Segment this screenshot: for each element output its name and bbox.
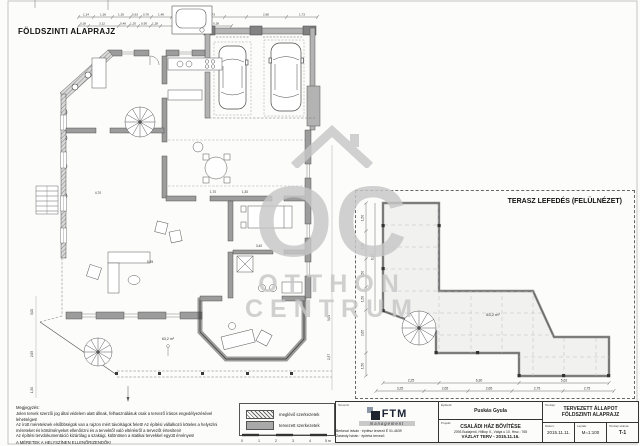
project-label: Projekt: xyxy=(441,421,451,425)
svg-text:0,48: 0,48 xyxy=(120,22,126,26)
living-room-furniture xyxy=(86,221,182,293)
svg-text:5 m: 5 m xyxy=(325,439,331,443)
corridor-lines xyxy=(168,140,305,186)
svg-text:2,65: 2,65 xyxy=(30,351,34,357)
planned-structure-swatch xyxy=(246,421,274,430)
ftm-logo-text: FTM xyxy=(382,409,408,420)
svg-text:1,50: 1,50 xyxy=(361,363,365,369)
sheet-name: FÖLDSZINTI ALAPRAJZ xyxy=(562,412,619,418)
terrace-plan-title: TERASZ LEFEDÉS (FELÜLNÉZET) xyxy=(508,198,622,205)
bedroom-furniture xyxy=(237,206,302,293)
spiral-staircase-icon xyxy=(125,107,155,137)
svg-text:3,40: 3,40 xyxy=(256,244,262,248)
client-label: Építtető: xyxy=(441,403,452,407)
title-block-project: Építtető: Puskás Gyula Projekt: CSALÁDI … xyxy=(439,402,543,442)
svg-text:2,37: 2,37 xyxy=(327,354,331,360)
svg-text:1,48: 1,48 xyxy=(158,13,164,17)
svg-text:1,36: 1,36 xyxy=(100,13,106,17)
svg-text:2,65: 2,65 xyxy=(442,387,449,391)
svg-text:1,20: 1,20 xyxy=(130,22,136,26)
legend-existing-label: meglévő szerkezetek xyxy=(279,412,319,417)
drawing-sheet: FÖLDSZINTI ALAPRAJZ xyxy=(0,0,640,446)
svg-text:0: 0 xyxy=(241,439,243,443)
svg-text:1,30: 1,30 xyxy=(242,190,248,194)
terrace-area-label: 63,2 m² xyxy=(162,337,175,341)
svg-text:1,73: 1,73 xyxy=(299,13,305,17)
ftm-logo-icon xyxy=(367,407,380,420)
title-block-sheet: Tervlap: TERVEZETT ÁLLAPOT FÖLDSZINTI AL… xyxy=(543,402,638,442)
exterior-stairs xyxy=(36,186,58,214)
spiral-staircase-icon xyxy=(402,311,436,345)
designer-label: Tervező: xyxy=(338,403,349,407)
svg-text:1,70: 1,70 xyxy=(210,190,216,194)
svg-text:2: 2 xyxy=(275,439,277,443)
svg-text:3,25: 3,25 xyxy=(397,387,404,391)
notes-line: A MÉRETEK A HELYSZÍNEN ELLENŐRIZENDŐK! xyxy=(16,440,232,445)
svg-text:2,75: 2,75 xyxy=(534,387,541,391)
terrace-plan-panel: TERASZ LEFEDÉS (FELÜLNÉZET) xyxy=(355,190,635,399)
sheet-number-cell: Tervlap száma: T-1 xyxy=(607,423,638,442)
svg-text:2,65: 2,65 xyxy=(486,387,493,391)
svg-text:4,70: 4,70 xyxy=(95,191,101,195)
title-block: Tervező: FTM management Berkeczi István … xyxy=(335,401,639,443)
svg-text:3,04: 3,04 xyxy=(327,315,331,321)
project-phase: VÁZLAT TERV - 2015.11.16. xyxy=(461,434,519,439)
spiral-staircase-icon xyxy=(84,338,112,366)
client-name: Puskás Gyula xyxy=(474,408,507,414)
scale-cell: Lépték: M=1:100 xyxy=(575,423,607,442)
garage xyxy=(204,26,320,130)
svg-text:5,95: 5,95 xyxy=(147,260,153,264)
svg-text:1: 1 xyxy=(258,439,260,443)
svg-text:1,50: 1,50 xyxy=(361,243,365,249)
notes-line: Az írott méreteknek elsőbbségük van a ra… xyxy=(16,422,232,433)
terrace-dims-bottom: 2,25 6,30 5,62 3,25 2,65 2,65 2,75 2,75 xyxy=(375,379,616,394)
scale-value: M=1:100 xyxy=(582,430,600,435)
svg-text:3,12: 3,12 xyxy=(99,22,105,26)
svg-text:1,50: 1,50 xyxy=(30,387,34,393)
svg-text:1,50: 1,50 xyxy=(361,296,365,302)
date-value: 2015.11.11. xyxy=(547,430,570,435)
notes: Megjegyzés: Jelen tervek szerzői jog ált… xyxy=(16,405,232,445)
svg-text:6,92: 6,92 xyxy=(371,254,375,260)
notes-line: Jelen tervek szerzői jog által védelem a… xyxy=(16,411,232,422)
title-block-designer: Tervező: FTM management Berkeczi István … xyxy=(336,402,439,442)
svg-text:2,75: 2,75 xyxy=(584,387,591,391)
ftm-logo: FTM management xyxy=(336,407,438,426)
svg-text:1,50: 1,50 xyxy=(361,215,365,221)
svg-text:0,90: 0,90 xyxy=(141,22,147,26)
terrace-dims-left: 1,50 1,50 1,50 1,50 2,65 1,50 6,92 xyxy=(361,202,376,378)
terrace-plan: 63,2 m² 2,25 6,30 5,62 3,25 2,65 2,65 2,… xyxy=(356,191,634,398)
legend-planned-label: tervezett szerkezetek xyxy=(279,423,320,428)
scale-bar: 0 1 2 3 4 5 m xyxy=(239,432,333,444)
car-icon xyxy=(269,43,304,111)
svg-text:0,76: 0,76 xyxy=(143,13,149,17)
terrace-area-label: 63,2 m² xyxy=(486,312,500,317)
svg-text:1,28: 1,28 xyxy=(152,22,158,26)
floor-plan: 1,14 1,36 1,35 0,63 0,76 1,48 1,45 0,74 … xyxy=(0,0,340,410)
svg-text:3,00: 3,00 xyxy=(30,309,34,315)
svg-text:2,80: 2,80 xyxy=(263,13,269,17)
sheet-number-label: Tervlap száma: xyxy=(609,424,629,428)
svg-text:2,65: 2,65 xyxy=(361,330,365,336)
svg-text:5,62: 5,62 xyxy=(561,379,568,383)
car-icon xyxy=(217,46,248,109)
wc-annex xyxy=(172,6,212,34)
svg-text:0,63: 0,63 xyxy=(132,13,138,17)
sheet-number-value: T-1 xyxy=(619,430,626,436)
svg-text:1,35: 1,35 xyxy=(118,13,124,17)
ftm-logo-subtext: management xyxy=(359,421,415,426)
date-cell: Dátum: 2015.11.11. xyxy=(543,423,575,442)
bay-room xyxy=(200,296,305,359)
svg-text:0,38: 0,38 xyxy=(80,22,86,26)
svg-text:1,14: 1,14 xyxy=(83,13,89,17)
page-title: FÖLDSZINTI ALAPRAJZ xyxy=(18,27,115,36)
notes-line: Az építési tervdokumentáció kizárólag a … xyxy=(16,433,232,438)
svg-text:6,30: 6,30 xyxy=(476,379,483,383)
notes-heading: Megjegyzés: xyxy=(16,405,232,410)
designer-name: Zarándy István · építész tervező xyxy=(336,434,438,439)
svg-text:1,50: 1,50 xyxy=(361,271,365,277)
svg-text:4: 4 xyxy=(309,439,311,443)
west-wall xyxy=(61,94,67,258)
sheet-label: Tervlap: xyxy=(545,403,556,407)
svg-text:0,38: 0,38 xyxy=(213,22,219,26)
svg-text:3: 3 xyxy=(292,439,294,443)
svg-text:2,25: 2,25 xyxy=(408,379,415,383)
existing-structure-swatch xyxy=(246,410,274,419)
date-label: Dátum: xyxy=(545,424,555,428)
scale-label: Lépték: xyxy=(577,424,587,428)
